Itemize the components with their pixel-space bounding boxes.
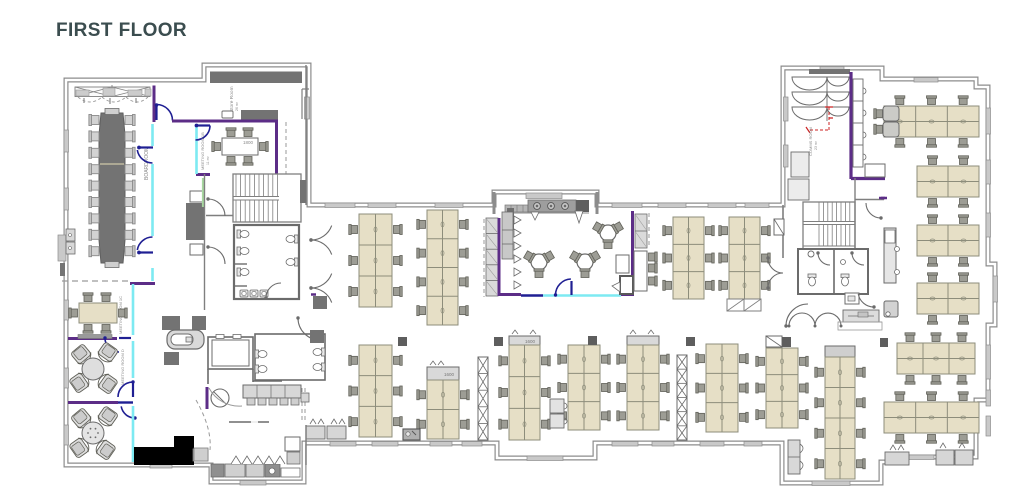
svg-text:MEETING ROOM 1B: MEETING ROOM 1B [200, 132, 205, 170]
svg-text:23 m²: 23 m² [814, 140, 818, 150]
svg-text:26 m²: 26 m² [235, 101, 239, 111]
svg-text:MEETING ROOM D: MEETING ROOM D [120, 349, 125, 385]
svg-text:1800: 1800 [243, 140, 254, 145]
svg-text:11 m²: 11 m² [206, 155, 210, 165]
svg-text:1600: 1600 [444, 372, 455, 377]
svg-text:1600: 1600 [525, 339, 536, 344]
svg-text:FIRST FLOOR: FIRST FLOOR [56, 20, 187, 41]
